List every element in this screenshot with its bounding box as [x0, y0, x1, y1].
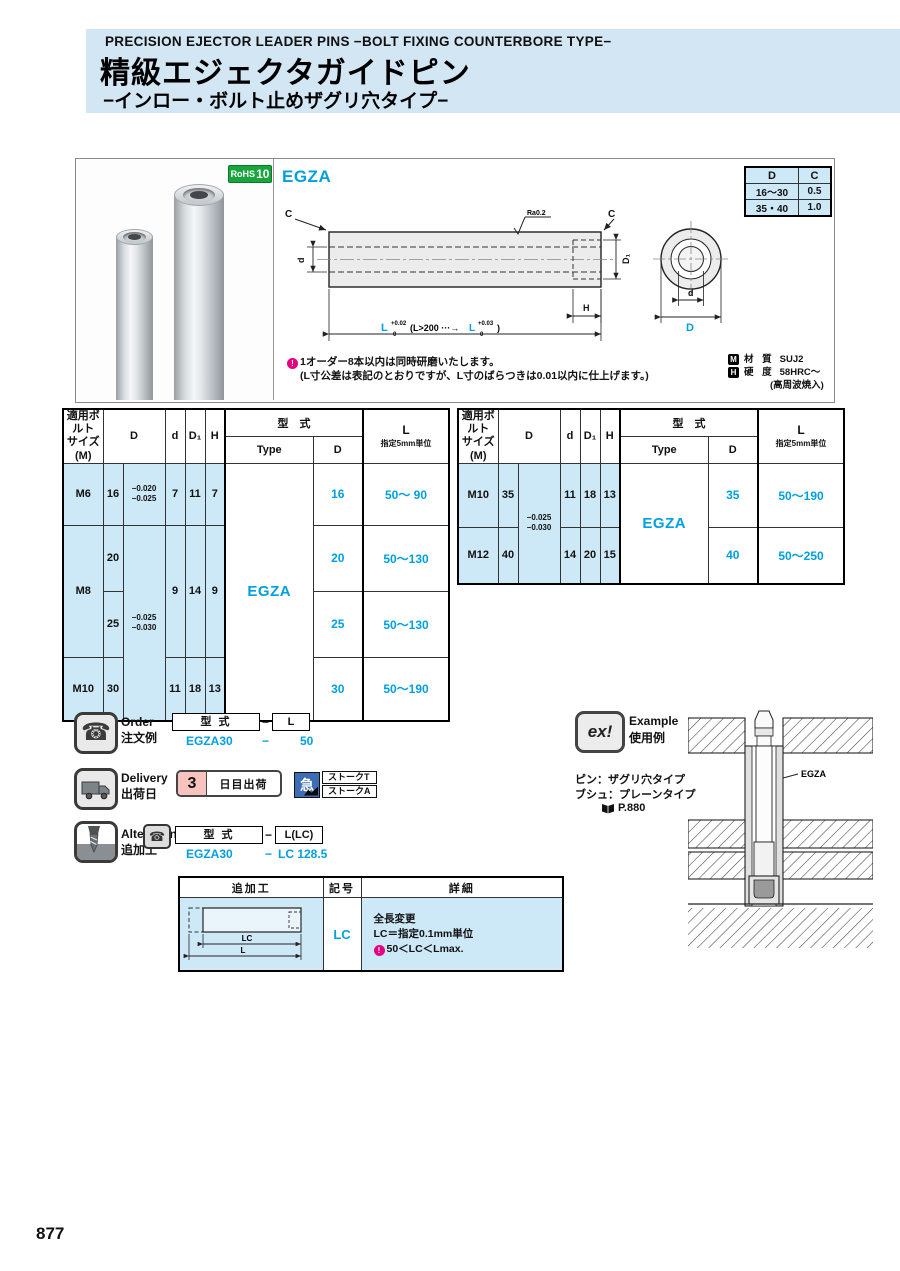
col-header-d1: D₁	[185, 409, 205, 463]
dim-d-label: d	[296, 258, 306, 264]
example-icon: ex!	[575, 711, 625, 753]
l-tolerance-upper: +0.02	[391, 321, 407, 327]
note-line-1: !1オーダー8本以内は同時研磨いたします。	[287, 355, 649, 369]
l2-tolerance-upper: +0.03	[478, 321, 494, 327]
hardness-icon: H	[728, 367, 739, 378]
example-label-jp: 使用例	[629, 729, 665, 746]
cell: 30	[313, 657, 363, 721]
cell: 7	[165, 463, 185, 525]
chamfer-col-c: C	[799, 167, 832, 184]
cell: 50～ 90	[363, 463, 449, 525]
dim-h-label: H	[583, 303, 590, 313]
cell: 16～30	[745, 184, 799, 200]
cell: 40	[498, 527, 518, 584]
cell: M8	[63, 525, 103, 657]
cell: 11	[560, 463, 580, 527]
chamfer-col-d: D	[745, 167, 799, 184]
material-info: M 材 質 SUJ2 H 硬 度 58HRC～ (高周波焼入)	[728, 353, 824, 392]
delivery-label-jp: 出荷日	[121, 785, 157, 802]
col-header-l: L指定5mm単位	[363, 409, 449, 463]
caution-icon: !	[287, 358, 298, 369]
col-header-d1: D₁	[580, 409, 600, 463]
pin-photo-small	[116, 229, 153, 400]
cell: 40	[708, 527, 758, 584]
delivery-icon	[74, 768, 118, 810]
note-line-2: (L寸公差は表記のとおりですが、L寸のばらつきは0.01以内に仕上げます。)	[300, 369, 649, 383]
model-name: EGZA	[282, 167, 331, 187]
cell: 16	[103, 463, 123, 525]
truck-icon	[81, 778, 111, 800]
order-model-box: 型 式	[172, 713, 260, 731]
order-example-dash: −	[262, 734, 269, 748]
stork-t: ストークT	[322, 771, 377, 784]
page-reference: P.880	[601, 802, 645, 814]
cell: 50～190	[363, 657, 449, 721]
l-note-open: (L>200 ···→	[410, 323, 459, 333]
cell: −0.025−0.030	[518, 463, 560, 584]
catalog-page: PRECISION EJECTOR LEADER PINS −BOLT FIXI…	[0, 0, 900, 1271]
product-notes: !1オーダー8本以内は同時研磨いたします。 (L寸公差は表記のとおりですが、L寸…	[287, 355, 649, 383]
book-icon	[601, 803, 615, 814]
hardness-note: (高周波焼入)	[770, 379, 824, 392]
cell: −0.020−0.025	[123, 463, 165, 525]
cell: 15	[600, 527, 620, 584]
stork-a: ストークA	[322, 785, 377, 798]
surface-finish-label: Ra0.2	[527, 210, 546, 217]
pin-photo-tall	[174, 184, 224, 400]
col-header-h: H	[205, 409, 225, 463]
example-pin-note: ピン：ザグリ穴タイプ	[575, 771, 685, 787]
col-header-type-d: D	[708, 436, 758, 463]
delivery-days-label: 日目出荷	[207, 772, 280, 795]
example-bush-note: ブシュ：プレーンタイプ	[575, 786, 695, 802]
l-dim-label: L	[241, 946, 246, 955]
col-header-d: D	[103, 409, 165, 463]
cell: 14	[185, 525, 205, 657]
col-header-type-d: D	[313, 436, 363, 463]
cell: 18	[580, 463, 600, 527]
chamfer-left-label: C	[285, 209, 292, 220]
lc-dim-label: LC	[242, 934, 253, 943]
alterations-l-box: L(LC)	[275, 826, 323, 844]
alterations-example-model: EGZA30	[186, 847, 233, 861]
technical-drawing: C C Ra0.2 d D₁ H	[271, 203, 831, 355]
caution-icon: !	[374, 945, 385, 956]
cell: 25	[313, 591, 363, 657]
express-badge: 急	[294, 772, 320, 798]
page-subtitle: −インロー・ボルト止めザグリ穴タイプ−	[103, 86, 448, 113]
delivery-days: 3	[178, 772, 207, 795]
cell: 0.5	[799, 184, 832, 200]
alterations-model-box: 型 式	[175, 826, 263, 844]
cell: 35	[708, 463, 758, 527]
cell: 50～130	[363, 591, 449, 657]
table-row: M6 16 −0.020−0.025 7 11 7 EGZA 16 50～ 90	[63, 463, 449, 525]
col-header-h: H	[600, 409, 620, 463]
col-header-d: D	[498, 409, 560, 463]
dim-d1-label: D₁	[621, 254, 631, 264]
delivery-label-en: Delivery	[121, 771, 168, 785]
col-header-small-d: d	[560, 409, 580, 463]
product-photo: RoHS10	[76, 159, 274, 400]
lc-code: LC	[323, 898, 361, 972]
hardness-label: 硬 度	[744, 366, 775, 379]
spec-table-left: 適用ボルトサイズ(M) D d D₁ H 型 式 L指定5mm単位 Type D…	[62, 408, 450, 722]
dim-l-label: L	[381, 322, 388, 334]
cell: 9	[165, 525, 185, 657]
hardness-row: H 硬 度 58HRC～	[728, 366, 824, 379]
cell: 13	[205, 657, 225, 721]
spec-table-right: 適用ボルトサイズ(M) D d D₁ H 型 式 L指定5mm単位 Type D…	[457, 408, 845, 585]
alterations-dash: −	[265, 828, 272, 842]
cell: 11	[185, 463, 205, 525]
header-band: PRECISION EJECTOR LEADER PINS −BOLT FIXI…	[86, 29, 900, 113]
cell: 16	[313, 463, 363, 525]
cell: 20	[313, 525, 363, 591]
example-diagram-label: EGZA	[801, 769, 827, 779]
title-english: PRECISION EJECTOR LEADER PINS −BOLT FIXI…	[105, 34, 612, 49]
cell: 50～130	[363, 525, 449, 591]
col-header-type: Type	[620, 436, 708, 463]
alterations-phone-icon: ☎	[143, 824, 171, 849]
table-row: LC L LC 全長変更 LC＝指定0.1mm単位 !50＜LC＜Lmax.	[179, 898, 563, 972]
order-l-box: L	[272, 713, 310, 731]
alteration-table: 追加工 記号 詳細 LC L	[178, 876, 564, 972]
material-value: SUJ2	[780, 353, 804, 366]
alterations-example-dash: −	[265, 847, 272, 861]
rohs-label: RoHS	[231, 169, 256, 179]
alterations-icon	[74, 821, 118, 863]
example-label-en: Example	[629, 714, 678, 728]
cell: M6	[63, 463, 103, 525]
cell-model: EGZA	[225, 463, 313, 721]
cell: 13	[600, 463, 620, 527]
page-number: 877	[36, 1224, 64, 1244]
cell: 7	[205, 463, 225, 525]
l2-tolerance-lower: 0	[480, 332, 484, 338]
alt-col-detail: 詳細	[361, 877, 563, 898]
stork-options: ストークT ストークA	[322, 771, 377, 798]
order-icon: ☎	[74, 712, 118, 754]
cell: M12	[458, 527, 498, 584]
material-icon: M	[728, 354, 739, 365]
alt-col-code: 記号	[323, 877, 361, 898]
order-label-en: Order	[121, 715, 154, 729]
l-tolerance-lower: 0	[393, 332, 397, 338]
l-note-close: )	[497, 323, 500, 333]
chamfer-right-label: C	[608, 209, 615, 220]
end-view-big-d-label: D	[686, 322, 694, 334]
lc-detail: 全長変更 LC＝指定0.1mm単位 !50＜LC＜Lmax.	[361, 898, 563, 972]
material-label: 材 質	[744, 353, 775, 366]
cell: 35	[498, 463, 518, 527]
material-row: M 材 質 SUJ2	[728, 353, 824, 366]
dim-l2-label: L	[469, 323, 475, 334]
cell: 20	[103, 525, 123, 591]
cell-model: EGZA	[620, 463, 708, 584]
order-example-model: EGZA30	[186, 734, 233, 748]
lc-diagram-cell: LC L	[179, 898, 323, 972]
table-row: M10 35 −0.025−0.030 11 18 13 EGZA 35 50～…	[458, 463, 844, 527]
rohs-badge: RoHS10	[228, 165, 272, 183]
cell: 20	[580, 527, 600, 584]
hardness-value: 58HRC～	[780, 366, 821, 379]
lc-diagram: LC L	[181, 900, 321, 964]
phone-icon: ☎	[81, 721, 111, 745]
cell: M10	[458, 463, 498, 527]
col-header-type: Type	[225, 436, 313, 463]
order-label-jp: 注文例	[121, 729, 157, 746]
cell: 25	[103, 591, 123, 657]
col-header-bolt: 適用ボルトサイズ(M)	[458, 409, 498, 463]
col-header-bolt: 適用ボルトサイズ(M)	[63, 409, 103, 463]
alt-col-process: 追加工	[179, 877, 323, 898]
cell: 50～250	[758, 527, 844, 584]
page-reference-number: P.880	[618, 802, 645, 814]
cell: 11	[165, 657, 185, 721]
example-diagram: EGZA	[688, 708, 873, 963]
drill-icon	[85, 826, 103, 856]
product-panel: RoHS10 EGZA D C 16～30 0.5 35・40 1.0	[75, 158, 835, 403]
col-header-model: 型 式	[620, 409, 758, 436]
order-example-l: 50	[300, 734, 313, 748]
alterations-example-l: LC 128.5	[278, 847, 327, 861]
col-header-small-d: d	[165, 409, 185, 463]
col-header-model: 型 式	[225, 409, 363, 436]
rohs-number: 10	[256, 167, 269, 181]
cell: 50～190	[758, 463, 844, 527]
express-service: 急 ストークT ストークA	[294, 771, 377, 798]
cell: 18	[185, 657, 205, 721]
order-dash: −	[262, 715, 269, 729]
delivery-days-box: 3 日目出荷	[176, 770, 282, 797]
cell: 9	[205, 525, 225, 657]
end-view-d-label: d	[688, 288, 694, 298]
cell: 14	[560, 527, 580, 584]
cell: −0.025−0.030	[123, 525, 165, 721]
col-header-l: L指定5mm単位	[758, 409, 844, 463]
